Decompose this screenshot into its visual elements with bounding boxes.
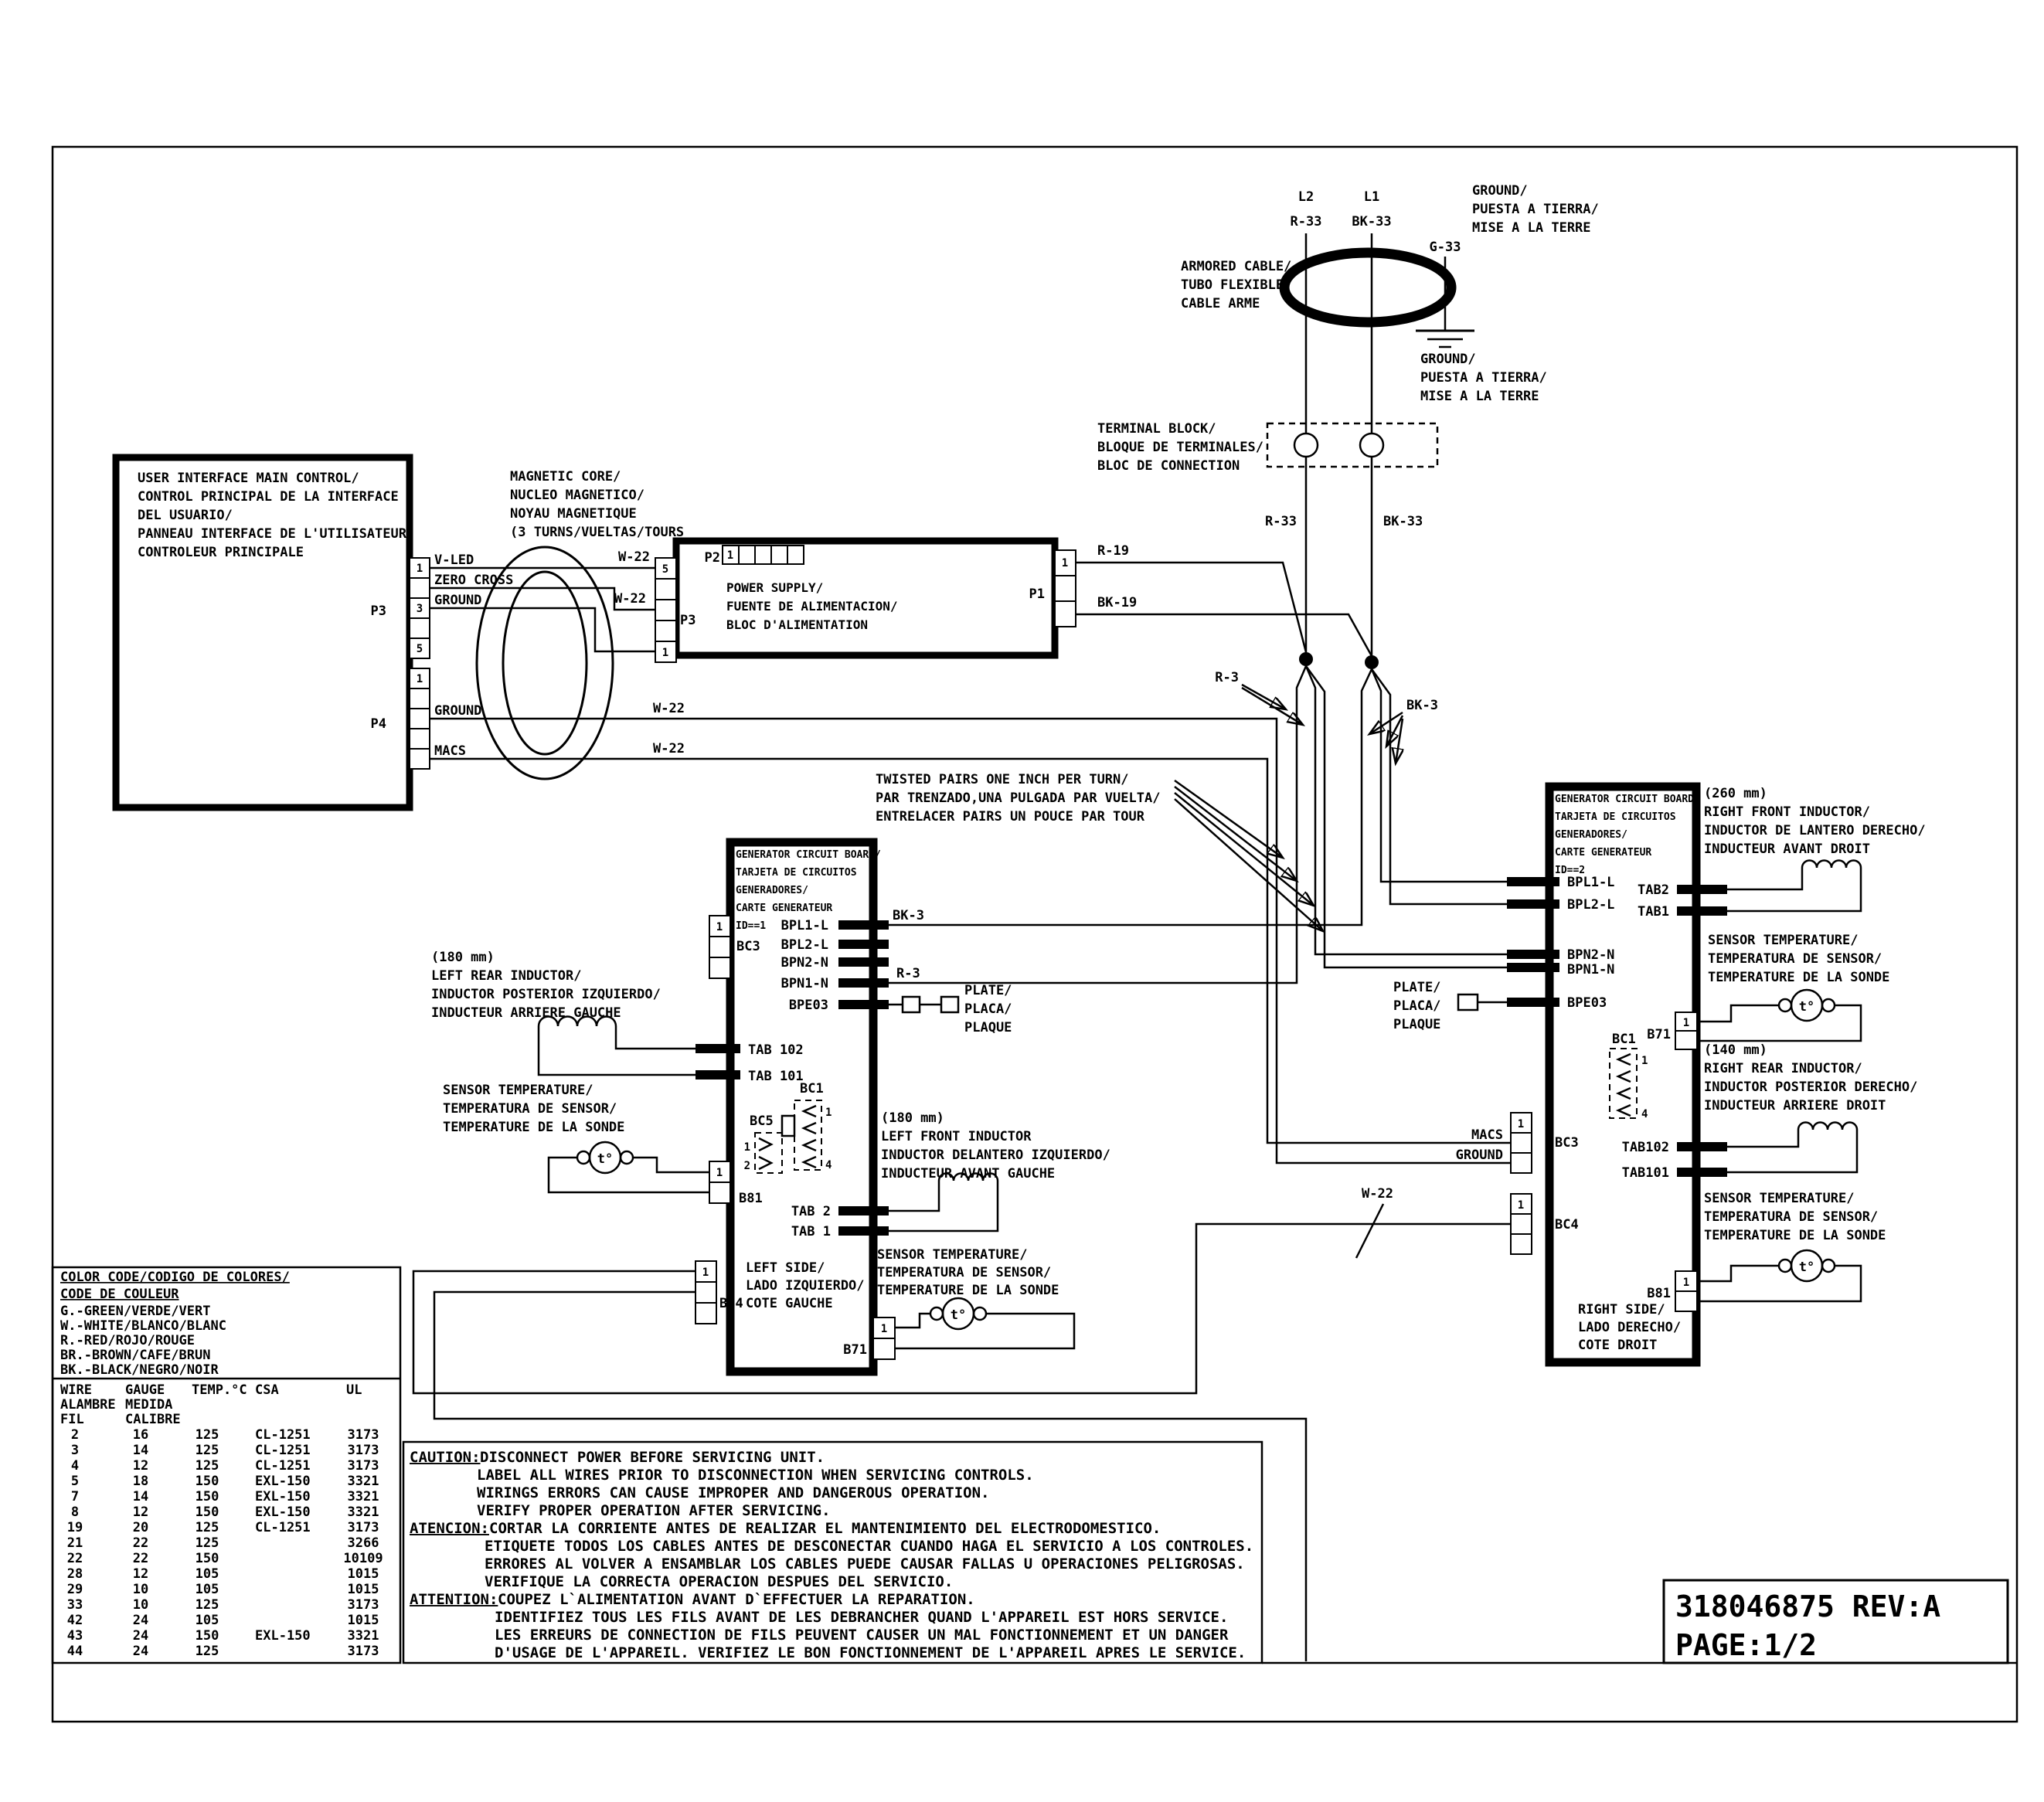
b2-rear-inductor-coil: [1798, 1123, 1857, 1130]
wt-r6-c: CL-1251: [255, 1520, 311, 1535]
b2-bc4-pin1: 1: [1518, 1199, 1524, 1212]
b1-label-tab101: TAB 101: [748, 1069, 804, 1084]
wt-r9-g: 12: [133, 1566, 148, 1582]
caution-l8: VERIFIQUE LA CORRECTA OPERACION DESPUES …: [485, 1573, 953, 1590]
ps-p2-pin1: 1: [727, 549, 733, 562]
b2-plate-connector: [1458, 994, 1478, 1010]
wt-r14-w: 44: [67, 1644, 83, 1659]
leader-twisted-b: [1175, 787, 1297, 881]
wire-ground-ps: [430, 608, 655, 651]
b1-label-bc5: BC5: [750, 1113, 774, 1129]
b1-front-ind-1: (180 mm): [881, 1110, 944, 1126]
wt-h-wire: WIRE: [60, 1382, 92, 1398]
caution-l4: VERIFY PROPER OPERATION AFTER SERVICING.: [477, 1502, 831, 1519]
b1-b71-pin1: 1: [881, 1323, 887, 1335]
wt-r7-u: 3266: [348, 1535, 379, 1551]
p3-pin3: 3: [417, 603, 423, 615]
wt-r2-g: 12: [133, 1458, 148, 1474]
b2-sensor2-t: t°: [1799, 1260, 1814, 1275]
b1-rear-ind-3: INDUCTOR POSTERIOR IZQUIERDO/: [431, 987, 661, 1002]
label-l1: L1: [1364, 189, 1379, 205]
b2-plate-label-3: PLAQUE: [1393, 1017, 1440, 1032]
ps-title-3: BLOC D'ALIMENTATION: [726, 617, 868, 632]
wt-r12-u: 1015: [348, 1613, 379, 1628]
junction-dot-bk: [1365, 655, 1379, 669]
b2-bc1-pin1: 1: [1641, 1055, 1648, 1067]
wire-b1-sensor-b: [633, 1158, 709, 1172]
b1-label-bpn2: BPN2-N: [781, 955, 828, 971]
wt-r1-w: 3: [71, 1443, 79, 1458]
b2-label-tab101: TAB101: [1622, 1165, 1669, 1181]
terminal-screw-l2: [1294, 433, 1318, 457]
wt-r8-u: 10109: [343, 1551, 383, 1566]
wt-r6-g: 20: [133, 1520, 148, 1535]
b2-tab-bpe03: [1507, 998, 1559, 1007]
b1-label-bpl2: BPL2-L: [781, 937, 828, 953]
wire-bk-bpl2: [1372, 669, 1507, 904]
b2-label-tab102: TAB102: [1622, 1140, 1669, 1155]
wt-r9-u: 1015: [348, 1566, 379, 1582]
label-p3: P3: [371, 603, 386, 619]
connector-ps-p1: 1: [1055, 550, 1076, 627]
wt-r4-w: 7: [71, 1489, 79, 1504]
wt-r2-t: 125: [196, 1458, 219, 1474]
label-ground-p4: GROUND: [434, 703, 481, 719]
leader-w22-e: [1356, 1204, 1383, 1258]
color-code-title-2: CODE DE COULEUR: [60, 1287, 179, 1302]
b1-front-ind-3: INDUCTOR DELANTERO IZQUIERDO/: [881, 1147, 1110, 1163]
label-bk3-wire: BK-3: [893, 908, 924, 923]
b1-bc4-pin1: 1: [702, 1266, 709, 1279]
wt-r1-u: 3173: [348, 1443, 379, 1458]
b2-connector-b81: 1: [1675, 1271, 1697, 1311]
caution-box: CAUTION: DISCONNECT POWER BEFORE SERVICI…: [403, 1442, 1262, 1663]
twisted-pairs-note: TWISTED PAIRS ONE INCH PER TURN/ PAR TRE…: [876, 772, 1323, 931]
color-entry-w: W.-WHITE/BLANCO/BLANC: [60, 1318, 226, 1334]
wt-r0-w: 2: [71, 1427, 79, 1443]
b2-label-bc3: BC3: [1555, 1135, 1579, 1151]
wt-r4-t: 150: [196, 1489, 219, 1504]
ground-mid-label-2: PUESTA A TIERRA/: [1420, 370, 1547, 386]
wt-r4-c: EXL-150: [255, 1489, 311, 1504]
wire-r3-left-board: [889, 666, 1306, 983]
caution-l1: DISCONNECT POWER BEFORE SERVICING UNIT.: [480, 1449, 825, 1466]
b2-label-bpn1: BPN1-N: [1567, 962, 1614, 977]
core-label-1: MAGNETIC CORE/: [510, 469, 621, 484]
color-entry-g: G.-GREEN/VERDE/VERT: [60, 1304, 210, 1319]
wt-r2-w: 4: [71, 1458, 79, 1474]
caution-h3: ATTENTION:: [410, 1591, 498, 1608]
label-l2: L2: [1298, 189, 1314, 205]
wt-r11-w: 33: [67, 1597, 83, 1613]
b1-plate-connector-2: [941, 997, 958, 1012]
wt-h-calibre: CALIBRE: [125, 1412, 181, 1427]
b1-tab-bpe03: [838, 1000, 889, 1009]
b1-label-bpl1: BPL1-L: [781, 918, 828, 933]
b2-tab-bpl1: [1507, 877, 1559, 886]
board2-title-1: GENERATOR CIRCUIT BOARD/: [1555, 794, 1700, 805]
label-w22-b: W-22: [614, 591, 646, 607]
b2-bc1-contacts: [1618, 1054, 1631, 1116]
b2-rear-ind-4: INDUCTEUR ARRIERE DROIT: [1704, 1098, 1886, 1113]
wire-b2-b81-b: [1697, 1266, 1861, 1301]
title-block: 318046875 REV:A PAGE:1/2: [1664, 1580, 2008, 1663]
b2-label-bpl2: BPL2-L: [1567, 897, 1614, 913]
board1-title-5: ID==1: [736, 920, 766, 932]
wt-r12-t: 105: [196, 1613, 219, 1628]
b2-label-ground: GROUND: [1456, 1147, 1503, 1163]
ps-p1-pin1: 1: [1062, 557, 1068, 569]
leader-twisted-c: [1175, 793, 1314, 906]
wt-r1-g: 14: [133, 1443, 148, 1458]
label-w22-d: W-22: [653, 741, 685, 756]
ui-title-2: CONTROL PRINCIPAL DE LA INTERFACE: [138, 489, 399, 505]
wt-r3-c: EXL-150: [255, 1474, 311, 1489]
b1-sensor-label-1: SENSOR TEMPERATURE/: [443, 1083, 593, 1098]
b1-tab-bpn1: [838, 978, 889, 988]
b1-label-bpn1: BPN1-N: [781, 976, 828, 991]
p4-pin1: 1: [417, 673, 423, 685]
label-r33-mid: R-33: [1265, 514, 1297, 529]
wt-r3-g: 18: [133, 1474, 148, 1489]
b2-label-tab1: TAB1: [1638, 904, 1669, 920]
wt-r0-u: 3173: [348, 1427, 379, 1443]
label-ground-p3: GROUND: [434, 593, 481, 608]
b1-tab101-bar: [696, 1070, 740, 1079]
wire-b2-b71-a: [1697, 1005, 1779, 1022]
wt-r10-u: 1015: [348, 1582, 379, 1597]
board2-title-3: GENERADORES/: [1555, 829, 1627, 841]
b2-bc1-pin4: 4: [1641, 1108, 1648, 1120]
ground-mid-label-3: MISE A LA TERRE: [1420, 389, 1539, 404]
caution-l7: ERRORES AL VOLVER A ENSAMBLAR LOS CABLES…: [485, 1555, 1245, 1572]
b1-sensor-label-3: TEMPERATURE DE LA SONDE: [443, 1120, 624, 1135]
b1-side-2: LADO IZQUIERDO/: [746, 1278, 865, 1294]
label-p4: P4: [371, 716, 386, 732]
wt-h-temp: TEMP.°C: [192, 1382, 247, 1398]
wt-r6-t: 125: [196, 1520, 219, 1535]
b1-label-bc1: BC1: [800, 1081, 824, 1096]
b2-sensor-label-3: TEMPERATURE DE LA SONDE: [1708, 970, 1889, 985]
wt-r10-g: 10: [133, 1582, 148, 1597]
b2-front-temp-sensor-icon: t°: [1779, 990, 1835, 1021]
terminal-label-2: BLOQUE DE TERMINALES/: [1097, 440, 1263, 455]
b2-rear-temp-sensor-icon: t°: [1779, 1250, 1835, 1281]
b1-bc3-pin1: 1: [716, 921, 723, 933]
wt-r13-c: EXL-150: [255, 1628, 311, 1644]
ground-top-label-2: PUESTA A TIERRA/: [1472, 202, 1599, 217]
wt-r11-u: 3173: [348, 1597, 379, 1613]
label-bk33-mid: BK-33: [1383, 514, 1423, 529]
b2-label-bpl1: BPL1-L: [1567, 875, 1614, 890]
label-ps-p2: P2: [705, 550, 720, 566]
wt-r13-t: 150: [196, 1628, 219, 1644]
b2-sensor2-label-3: TEMPERATURE DE LA SONDE: [1704, 1228, 1886, 1243]
b1-label-bpe03: BPE03: [789, 998, 828, 1013]
core-label-3: NOYAU MAGNETIQUE: [510, 506, 637, 522]
b1-front-temp-sensor-icon: t°: [930, 1298, 986, 1329]
wire-b1-rear-coil-a: [616, 1026, 696, 1049]
b1-rear-temp-sensor-icon: t°: [577, 1142, 633, 1173]
b2-rear-ind-1: (140 mm): [1704, 1042, 1767, 1058]
connector-p3: 1 3 5: [410, 558, 430, 658]
power-supply: POWER SUPPLY/ FUENTE DE ALIMENTACION/ BL…: [655, 541, 1076, 662]
wt-r9-w: 28: [67, 1566, 83, 1582]
b2-front-inductor-coil: [1802, 861, 1861, 869]
label-w22-c: W-22: [653, 701, 685, 716]
wt-r9-t: 105: [196, 1566, 219, 1582]
wt-r5-g: 12: [133, 1504, 148, 1520]
b2-front-ind-3: INDUCTOR DE LANTERO DERECHO/: [1704, 823, 1926, 838]
b2-bc3-pin1: 1: [1518, 1118, 1524, 1130]
wt-r5-u: 3321: [348, 1504, 379, 1520]
connector-p4: 1: [410, 668, 430, 769]
p3-pin1: 1: [417, 563, 423, 575]
color-code-title-1: COLOR CODE/CODIGO DE COLORES/: [60, 1270, 290, 1285]
schematic-canvas: L2 R-33 L1 BK-33 GROUND/ PUESTA A TIERRA…: [0, 0, 2044, 1802]
b2-tab-bpn2: [1507, 950, 1559, 959]
wt-r14-g: 24: [133, 1644, 148, 1659]
terminal-screw-l1: [1360, 433, 1383, 457]
b1-front-ind-4: INDUCTEUR AVANT GAUCHE: [881, 1166, 1055, 1181]
b1-side-1: LEFT SIDE/: [746, 1260, 825, 1276]
wire-table-rows: 216125CL-12513173 314125CL-12513173 4121…: [67, 1427, 383, 1659]
wt-h-csa: CSA: [255, 1382, 279, 1398]
ui-title-3: DEL USUARIO/: [138, 508, 233, 523]
label-ps-p3: P3: [680, 613, 696, 628]
leader-twisted-d: [1175, 799, 1323, 931]
b2-front-ind-1: (260 mm): [1704, 786, 1767, 801]
twisted-label-3: ENTRELACER PAIRS UN POUCE PAR TOUR: [876, 809, 1145, 824]
wt-r14-t: 125: [196, 1644, 219, 1659]
b2-side-3: COTE DROIT: [1578, 1338, 1657, 1353]
generator-board-2: GENERATOR CIRCUIT BOARD/ TARJETA DE CIRC…: [1393, 786, 1926, 1362]
b1-bc5-bc1-link: [782, 1116, 794, 1136]
b2-side-2: LADO DERECHO/: [1578, 1320, 1681, 1335]
b1-label-bc4: BC4: [719, 1296, 743, 1311]
board1-title-2: TARJETA DE CIRCUITOS: [736, 867, 857, 879]
b1-tab-bpl2: [838, 940, 889, 949]
b2-tab1-bar: [1677, 906, 1727, 916]
wt-r11-g: 10: [133, 1597, 148, 1613]
b1-bc1-pin1: 1: [825, 1107, 832, 1119]
label-r19: R-19: [1097, 543, 1129, 559]
b1-connector-bc3: 1: [709, 916, 730, 978]
junction-dot-r: [1299, 652, 1313, 666]
b2-tab-bpn1: [1507, 963, 1559, 972]
b2-sensor-label-1: SENSOR TEMPERATURE/: [1708, 933, 1858, 948]
wire-b2-b81-a: [1697, 1266, 1779, 1281]
b1-tab-bpn2: [838, 957, 889, 967]
wire-b1-front-coil-b: [889, 1181, 998, 1231]
label-r33-top: R-33: [1291, 214, 1322, 229]
wt-h-fil: FIL: [60, 1412, 84, 1427]
wt-r2-c: CL-1251: [255, 1458, 311, 1474]
b1-sensor2-t: t°: [951, 1307, 966, 1323]
label-v-led: V-LED: [434, 552, 474, 568]
wt-r7-g: 22: [133, 1535, 148, 1551]
wire-b1-rear-coil-b: [539, 1026, 696, 1075]
terminal-label-3: BLOC DE CONNECTION: [1097, 458, 1240, 474]
wt-r7-w: 21: [67, 1535, 83, 1551]
wt-r2-u: 3173: [348, 1458, 379, 1474]
b1-connector-b81: 1: [709, 1161, 730, 1203]
b2-connector-b71: 1: [1675, 1012, 1697, 1049]
armored-cable-ring: [1284, 253, 1451, 322]
wt-r1-t: 125: [196, 1443, 219, 1458]
b1-sensor-t: t°: [597, 1151, 613, 1167]
b2-sensor2-label-2: TEMPERATURA DE SENSOR/: [1704, 1209, 1878, 1225]
b1-plate-label-2: PLACA/: [964, 1001, 1012, 1017]
b2-rear-ind-3: INDUCTOR POSTERIOR DERECHO/: [1704, 1079, 1917, 1095]
wire-b1-front-coil-a: [889, 1181, 939, 1211]
leader-r3-a: [1242, 685, 1286, 709]
terminal-label-1: TERMINAL BLOCK/: [1097, 421, 1216, 437]
wt-r7-t: 125: [196, 1535, 219, 1551]
b1-rear-ind-1: (180 mm): [431, 950, 495, 965]
caution-l10: IDENTIFIEZ TOUS LES FILS AVANT DE LES DE…: [495, 1609, 1228, 1626]
b1-tab1-bar: [838, 1226, 889, 1236]
connector-ps-p3: 5 1: [655, 558, 676, 662]
wire-b2-rear-coil-a: [1727, 1130, 1798, 1147]
b2-b81-pin1: 1: [1683, 1277, 1689, 1289]
wt-r12-w: 42: [67, 1613, 83, 1628]
wt-r13-g: 24: [133, 1628, 148, 1644]
board2-title-2: TARJETA DE CIRCUITOS: [1555, 811, 1676, 823]
b2-sensor-label-2: TEMPERATURA DE SENSOR/: [1708, 951, 1882, 967]
b2-plate-label-2: PLACA/: [1393, 998, 1440, 1014]
color-entry-br: BR.-BROWN/CAFE/BRUN: [60, 1348, 210, 1363]
b1-tab102-bar: [696, 1044, 740, 1053]
wire-bk19: [1076, 614, 1372, 656]
b2-tab2-bar: [1677, 885, 1727, 894]
wt-r0-t: 125: [196, 1427, 219, 1443]
core-label-4: (3 TURNS/VUELTAS/TOURS: [510, 525, 684, 540]
wt-r10-w: 29: [67, 1582, 83, 1597]
b1-bc1-contacts: [804, 1106, 816, 1168]
b2-label-b71: B71: [1647, 1027, 1671, 1042]
wt-r8-w: 22: [67, 1551, 83, 1566]
b1-bc1-pin4: 4: [825, 1159, 832, 1171]
wt-r8-g: 22: [133, 1551, 148, 1566]
wire-b2-front-coil-a: [1727, 868, 1802, 889]
caution-l12: D'USAGE DE L'APPAREIL. VERIFIEZ LE BON F…: [495, 1644, 1246, 1661]
wt-r4-g: 14: [133, 1489, 148, 1504]
mains-section: L2 R-33 L1 BK-33 GROUND/ PUESTA A TIERRA…: [889, 183, 1599, 983]
wt-r4-u: 3321: [348, 1489, 379, 1504]
wt-r3-w: 5: [71, 1474, 79, 1489]
b1-sensor-label-2: TEMPERATURA DE SENSOR/: [443, 1101, 617, 1117]
b1-b81-pin1: 1: [716, 1167, 723, 1179]
wt-r6-u: 3173: [348, 1520, 379, 1535]
armored-label-2: TUBO FLEXIBLE/: [1181, 277, 1291, 293]
wt-r0-g: 16: [133, 1427, 148, 1443]
ui-title-4: PANNEAU INTERFACE DE L'UTILISATEUR: [138, 526, 407, 542]
wt-h-alambre: ALAMBRE: [60, 1397, 116, 1413]
b2-label-bc4: BC4: [1555, 1217, 1579, 1232]
caution-l5: CORTAR LA CORRIENTE ANTES DE REALIZAR EL…: [489, 1520, 1161, 1537]
wt-r0-c: CL-1251: [255, 1427, 311, 1443]
board1-title-3: GENERADORES/: [736, 885, 808, 896]
b2-connector-bc3: 1: [1511, 1113, 1532, 1173]
b1-label-b81: B81: [739, 1191, 763, 1206]
b2-front-ind-4: INDUCTEUR AVANT DROIT: [1704, 841, 1870, 857]
b1-sensor2-label-2: TEMPERATURA DE SENSOR/: [877, 1265, 1051, 1280]
wt-h-gauge: GAUGE: [125, 1382, 165, 1398]
b2-front-ind-2: RIGHT FRONT INDUCTOR/: [1704, 804, 1870, 820]
wt-h-medida: MEDIDA: [125, 1397, 172, 1413]
b2-label-b81: B81: [1647, 1286, 1671, 1301]
b1-sensor2-label-1: SENSOR TEMPERATURE/: [877, 1247, 1027, 1263]
color-entry-bk: BK.-BLACK/NEGRO/NOIR: [60, 1362, 219, 1378]
label-w22-a: W-22: [618, 549, 650, 565]
b2-tab-bpl2: [1507, 899, 1559, 909]
b1-tab-bpl1: [838, 920, 889, 930]
caution-l9: COUPEZ L`ALIMENTATION AVANT D`EFFECTUER …: [498, 1591, 975, 1608]
terminal-block-outline: [1267, 423, 1437, 467]
wire-bk-bpl1: [1372, 669, 1507, 882]
b2-plate-label-1: PLATE/: [1393, 980, 1440, 995]
b1-bc5-pin1: 1: [744, 1141, 750, 1154]
wire-b2-b71-b: [1697, 1005, 1861, 1041]
magnetic-core: MAGNETIC CORE/ NUCLEO MAGNETICO/ NOYAU M…: [477, 469, 684, 779]
wt-r5-w: 8: [71, 1504, 79, 1520]
ui-main-control: USER INTERFACE MAIN CONTROL/ CONTROL PRI…: [116, 457, 1511, 1163]
wt-r3-t: 150: [196, 1474, 219, 1489]
b2-sensor-t: t°: [1799, 999, 1814, 1015]
board2-title-4: CARTE GENERATEUR: [1555, 847, 1651, 858]
b1-label-bc3: BC3: [736, 939, 760, 954]
caution-l3: WIRINGS ERRORS CAN CAUSE IMPROPER AND DA…: [477, 1484, 989, 1501]
label-bk33-top: BK-33: [1352, 214, 1391, 229]
color-code-table: COLOR CODE/CODIGO DE COLORES/ CODE DE CO…: [53, 1267, 400, 1663]
label-g33: G-33: [1430, 240, 1461, 255]
wt-r11-t: 125: [196, 1597, 219, 1613]
twisted-label-2: PAR TRENZADO,UNA PULGADA PAR VUELTA/: [876, 790, 1160, 806]
caution-l6: ETIQUETE TODOS LOS CABLES ANTES DE DESCO…: [485, 1538, 1253, 1555]
b1-rear-ind-4: INDUCTEUR ARRIERE GAUCHE: [431, 1005, 621, 1021]
b1-bc5-contacts: [759, 1138, 771, 1169]
b1-connector-b71: 1: [873, 1317, 895, 1359]
b2-tab102-bar: [1677, 1142, 1727, 1151]
b2-rear-ind-2: RIGHT REAR INDUCTOR/: [1704, 1061, 1862, 1076]
wire-b1-b71-a: [895, 1314, 930, 1328]
b1-connector-bc4: 1: [696, 1261, 716, 1324]
armored-label-1: ARMORED CABLE/: [1181, 259, 1291, 274]
wt-r3-u: 3321: [348, 1474, 379, 1489]
ps-p3-pin5: 5: [662, 563, 668, 576]
board1-title-1: GENERATOR CIRCUIT BOARD/: [736, 849, 881, 861]
b2-side-1: RIGHT SIDE/: [1578, 1302, 1665, 1317]
b2-label-macs: MACS: [1471, 1127, 1503, 1143]
ui-title-1: USER INTERFACE MAIN CONTROL/: [138, 471, 359, 486]
p3-pin5: 5: [417, 643, 423, 655]
label-macs: MACS: [434, 743, 466, 759]
part-number: 318046875 REV:A: [1675, 1589, 1940, 1623]
b1-sensor2-label-3: TEMPERATURE DE LA SONDE: [877, 1283, 1059, 1298]
b1-plate-connector-1: [903, 997, 920, 1012]
ground-mid-label-1: GROUND/: [1420, 352, 1476, 367]
wire-b2-rear-coil-b: [1727, 1130, 1857, 1172]
label-r3-mid: R-3: [1215, 670, 1239, 685]
b1-label-tab1: TAB 1: [791, 1224, 831, 1239]
b2-label-bc1: BC1: [1612, 1032, 1636, 1047]
b1-label-tab2: TAB 2: [791, 1204, 831, 1219]
caution-l2: LABEL ALL WIRES PRIOR TO DISCONNECTION W…: [477, 1467, 1034, 1484]
label-ps-p1: P1: [1029, 586, 1045, 602]
ui-title-5: CONTROLEUR PRINCIPALE: [138, 545, 304, 560]
label-r3-wire: R-3: [896, 966, 920, 981]
